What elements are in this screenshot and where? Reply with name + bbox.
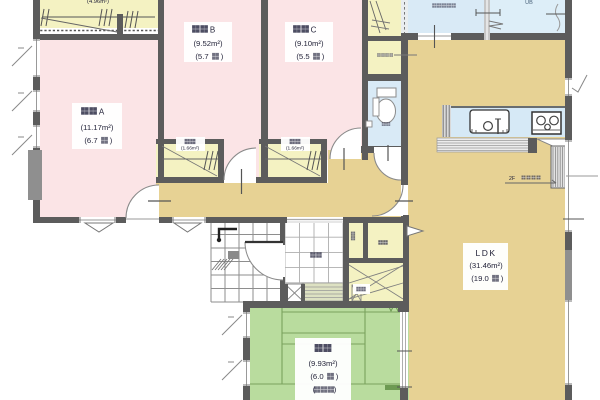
- svg-text:(4.96m²): (4.96m²): [87, 0, 109, 5]
- svg-text:(6.7: (6.7: [84, 136, 97, 145]
- svg-text:(31.46m²): (31.46m²): [469, 261, 503, 270]
- svg-text:): ): [221, 52, 224, 61]
- svg-text:2F: 2F: [509, 176, 515, 182]
- svg-text:): ): [334, 385, 337, 394]
- svg-text:): ): [110, 136, 113, 145]
- svg-text:): ): [501, 274, 504, 283]
- svg-text:B: B: [210, 26, 215, 35]
- svg-text:(5.7: (5.7: [195, 52, 208, 61]
- svg-text:(19.0: (19.0: [471, 274, 489, 283]
- svg-text:C: C: [311, 26, 317, 35]
- svg-text:(6.0: (6.0: [310, 372, 323, 381]
- svg-text:): ): [322, 52, 325, 61]
- svg-text:A: A: [99, 108, 105, 117]
- svg-text:(9.10m²): (9.10m²): [294, 39, 323, 48]
- svg-text:(1.66m²): (1.66m²): [286, 146, 305, 152]
- svg-text:(9.93m²): (9.93m²): [308, 359, 337, 368]
- svg-text:(11.17m²): (11.17m²): [81, 123, 114, 132]
- svg-text:(1.66m²): (1.66m²): [181, 146, 200, 152]
- svg-text:(9.52m²): (9.52m²): [193, 39, 222, 48]
- svg-text:(5.5: (5.5: [296, 52, 309, 61]
- svg-text:LDK: LDK: [475, 248, 496, 258]
- svg-text:): ): [336, 372, 339, 381]
- svg-text:UB: UB: [525, 0, 533, 6]
